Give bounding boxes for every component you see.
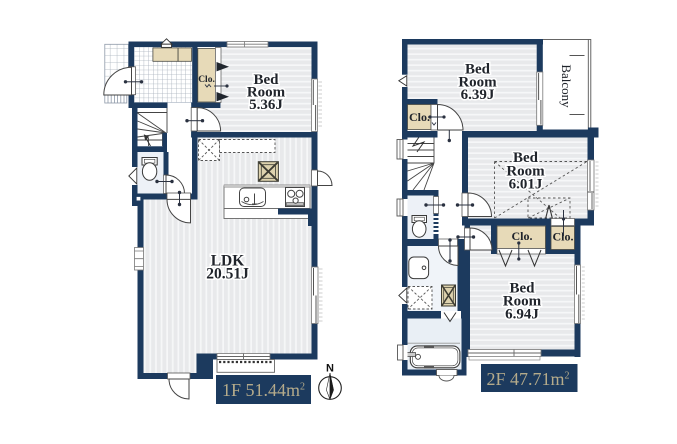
svg-text:5.36J: 5.36J [249, 97, 283, 113]
svg-text:2F 47.71m2: 2F 47.71m2 [486, 369, 569, 389]
svg-text:6.01J: 6.01J [509, 177, 543, 193]
svg-text:Clo.: Clo. [409, 110, 430, 124]
svg-text:N: N [326, 363, 334, 375]
svg-text:1F 51.44m2: 1F 51.44m2 [222, 380, 305, 400]
svg-text:Clo.: Clo. [198, 75, 215, 85]
svg-text:20.51J: 20.51J [206, 266, 249, 283]
svg-text:6.94J: 6.94J [505, 307, 539, 323]
svg-text:Balcony: Balcony [559, 64, 574, 108]
svg-text:6.39J: 6.39J [461, 87, 495, 103]
svg-text:Clo.: Clo. [512, 229, 533, 243]
